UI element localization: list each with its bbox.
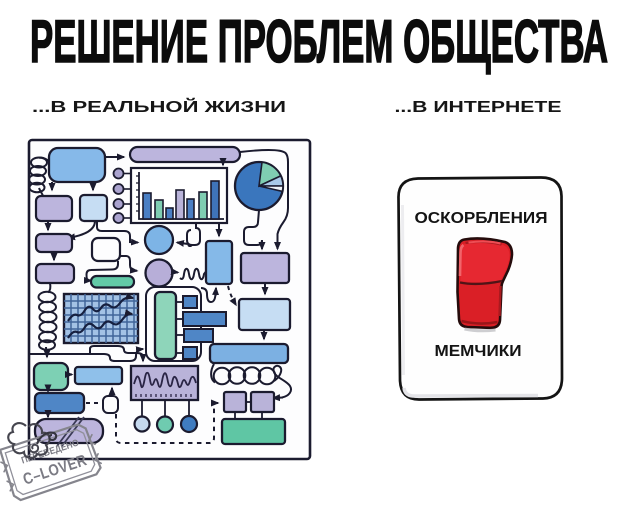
- svg-text:ОСКОРБЛЕНИЯ: ОСКОРБЛЕНИЯ: [415, 210, 548, 227]
- svg-text:МЕМЧИКИ: МЕМЧИКИ: [435, 343, 522, 360]
- svg-text:РЕШЕНИЕ ПРОБЛЕМ ОБЩЕСТВА: РЕШЕНИЕ ПРОБЛЕМ ОБЩЕСТВА: [30, 8, 608, 75]
- svg-text:...В ИНТЕРНЕТЕ: ...В ИНТЕРНЕТЕ: [395, 99, 562, 116]
- svg-text:...В РЕАЛЬНОЙ ЖИЗНИ: ...В РЕАЛЬНОЙ ЖИЗНИ: [32, 97, 286, 116]
